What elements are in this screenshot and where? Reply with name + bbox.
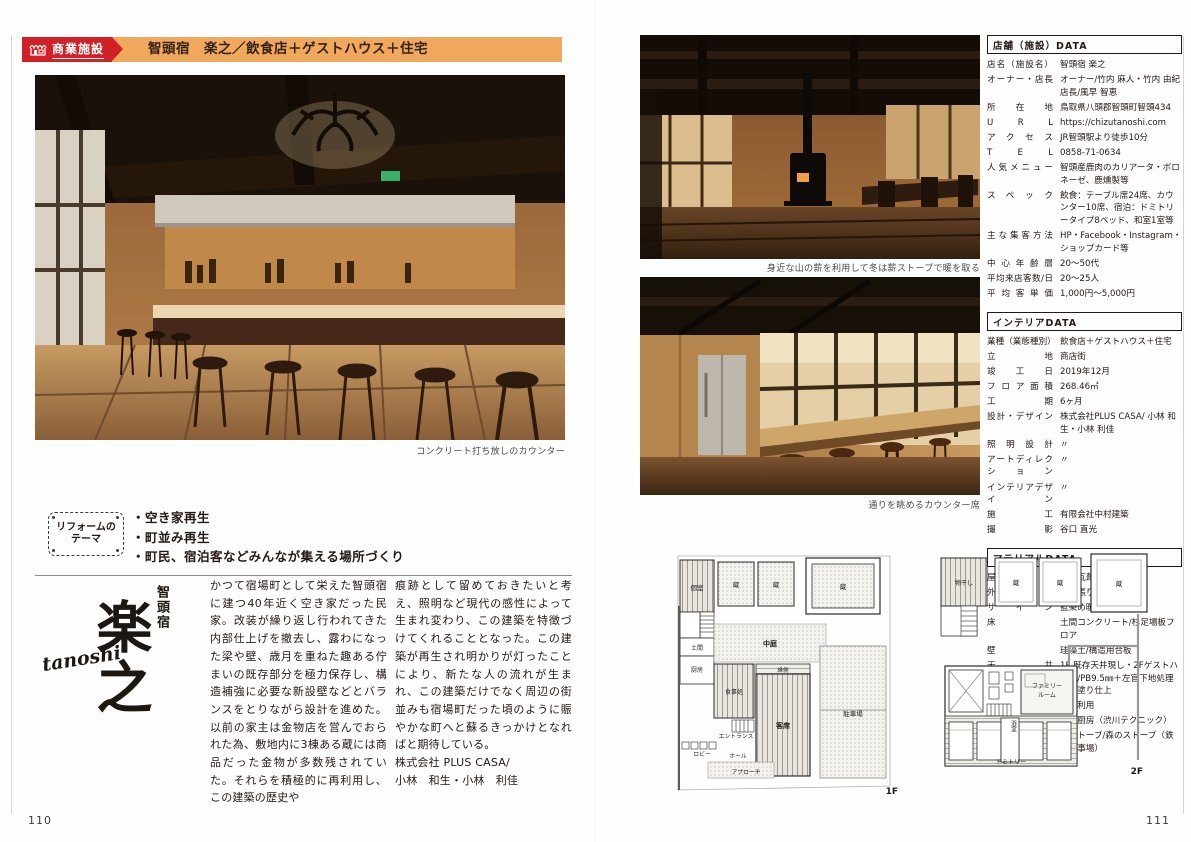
data-row: 中心年齢層20～50代 — [987, 258, 1182, 271]
data-row: 業種（業態種別）飲食店＋ゲストハウス＋住宅 — [987, 336, 1182, 349]
body-text-column-2: 痕跡として留めておきたいと考え、照明など現代の感性によって生まれ変わり、この建築… — [395, 577, 572, 789]
data-row: 施工有限会社中村建築 — [987, 509, 1182, 522]
data-row: 撮影谷口 直光 — [987, 524, 1182, 537]
reform-badge-line1: リフォームの — [56, 522, 116, 534]
shop-building-icon — [29, 42, 47, 57]
svg-text:ドミトリー: ドミトリー — [996, 759, 1026, 766]
photo-caption: コンクリート打ち放しのカウンター — [35, 444, 565, 457]
shop-data-section: 店舗（施設）DATA 店名（施設名）智頭宿 楽之 オーナー・店長オーナー/竹内 … — [987, 35, 1182, 301]
data-row: オーナー・店長オーナー/竹内 麻人・竹内 由紀 店長/風早 智恵 — [987, 74, 1182, 99]
svg-text:中庭: 中庭 — [763, 639, 778, 648]
svg-text:駐車場: 駐車場 — [843, 709, 863, 718]
svg-text:蔵: 蔵 — [773, 580, 780, 589]
svg-text:2F: 2F — [1131, 767, 1143, 777]
svg-text:ホール: ホール — [729, 753, 747, 760]
category-tag: 商業施設 — [22, 37, 112, 62]
data-row: 店名（施設名）智頭宿 楽之 — [987, 59, 1182, 72]
svg-text:厨房: 厨房 — [691, 666, 703, 674]
svg-text:浴室: 浴室 — [1010, 719, 1017, 732]
svg-text:蔵: 蔵 — [1116, 579, 1123, 588]
interior-data-section: インテリアDATA 業種（業態種別）飲食店＋ゲストハウス＋住宅 立地商店街 竣工… — [987, 312, 1182, 537]
reform-badge-line2: テーマ — [71, 534, 101, 546]
photo2-caption: 通りを眺めるカウンター席 — [640, 498, 980, 511]
floor-plan-1f: 個室 土間 厨房 食事処 中庭 縁側 客席 蔵 蔵 蔵 駐車場 — [650, 546, 902, 798]
data-row: 人気メニュー智頭産鹿肉のカリアータ・ボロネーゼ、鹿燻製等 — [987, 162, 1182, 187]
data-row: アートディレクション〃 — [987, 454, 1182, 479]
svg-text:食事処: 食事処 — [725, 688, 743, 696]
data-row: 設計・デザイン株式会社PLUS CASA/ 小林 和生・小林 利佳 — [987, 411, 1182, 436]
svg-text:ロビー: ロビー — [693, 750, 711, 758]
section-divider — [35, 575, 572, 576]
reform-theme-list: ・空き家再生 ・町並み再生 ・町民、宿泊客などみんなが集える場所づくり — [132, 508, 572, 567]
right-page-edge — [1183, 36, 1184, 814]
data-row: 照明設計〃 — [987, 439, 1182, 452]
photo-window-counter — [640, 277, 980, 495]
svg-text:アプローチ: アプローチ — [732, 769, 761, 776]
reform-item: ・町並み再生 — [132, 528, 572, 548]
svg-text:縁側: 縁側 — [777, 666, 789, 674]
data-row: 立地商店街 — [987, 351, 1182, 364]
data-row: 所在地鳥取県八頭郡智頭町智頭434 — [987, 102, 1182, 115]
svg-text:ルーム: ルーム — [1038, 692, 1056, 699]
logo-region-text: 智頭宿 — [152, 585, 171, 630]
floor-plan-2f: 物干し 蔵 蔵 蔵 ファミリー ルーム — [933, 546, 1148, 778]
photo-stove-room — [640, 35, 980, 259]
data-row: U R Lhttps://chizutanoshi.com — [987, 117, 1182, 130]
svg-text:物干し: 物干し — [955, 579, 973, 587]
exit-sign — [381, 171, 400, 181]
svg-text:土間: 土間 — [691, 644, 703, 652]
svg-text:蔵: 蔵 — [840, 582, 847, 591]
svg-text:1F: 1F — [886, 787, 898, 797]
page-number-right: 111 — [1146, 814, 1170, 827]
svg-text:蔵: 蔵 — [733, 580, 740, 589]
article-header: 智頭宿 楽之／飲食店＋ゲストハウス＋住宅 商業施設 — [22, 37, 562, 62]
data-row: スペック飲食：テーブル席24席、カウンター10席、宿泊：ドミトリータイプ8ベッド… — [987, 190, 1182, 228]
svg-text:エントランス: エントランス — [719, 733, 754, 740]
data-row: 平均客単価1,000円～5,000円 — [987, 288, 1182, 301]
reform-item: ・町民、宿泊客などみんなが集える場所づくり — [132, 547, 572, 567]
data-row: フロア面積268.46㎡ — [987, 381, 1182, 394]
data-row: T E L0858-71-0634 — [987, 147, 1182, 160]
data-row: インテリアデザイン〃 — [987, 482, 1182, 507]
body-text-column-1: かつて宿場町として栄えた智頭宿に建つ40年近く空き家だった民家。改装が繰り返し行… — [210, 577, 387, 807]
category-label: 商業施設 — [52, 40, 104, 59]
interior-data-title: インテリアDATA — [987, 312, 1182, 331]
page-gutter — [594, 0, 596, 842]
svg-text:蔵: 蔵 — [1057, 578, 1064, 587]
svg-text:客席: 客席 — [775, 721, 790, 730]
data-row: 工期6ヶ月 — [987, 396, 1182, 409]
stainless-door — [698, 355, 746, 455]
photo-bar-counter — [35, 75, 565, 440]
shop-data-title: 店舗（施設）DATA — [987, 35, 1182, 54]
photo1-caption: 身近な山の薪を利用して冬は薪ストーブで暖を取る — [640, 261, 980, 274]
left-page-edge — [11, 36, 12, 814]
data-row: 平均来店客数/日20～25人 — [987, 273, 1182, 286]
magazine-spread: 智頭宿 楽之／飲食店＋ゲストハウス＋住宅 商業施設 — [0, 0, 1191, 842]
data-row: 竣工日2019年12月 — [987, 366, 1182, 379]
reform-theme-badge: リフォームの テーマ — [48, 512, 124, 556]
svg-text:ファミリー: ファミリー — [1032, 683, 1062, 690]
data-row: アクセスJR智頭駅より徒歩10分 — [987, 132, 1182, 145]
svg-text:蔵: 蔵 — [1013, 578, 1020, 587]
svg-text:個室: 個室 — [691, 583, 705, 592]
data-row: 主な集客方法HP・Facebook・Instagram・ショップカード等 — [987, 230, 1182, 255]
page-number-left: 110 — [28, 814, 52, 827]
reform-item: ・空き家再生 — [132, 508, 572, 528]
article-title: 智頭宿 楽之／飲食店＋ゲストハウス＋住宅 — [148, 37, 428, 62]
